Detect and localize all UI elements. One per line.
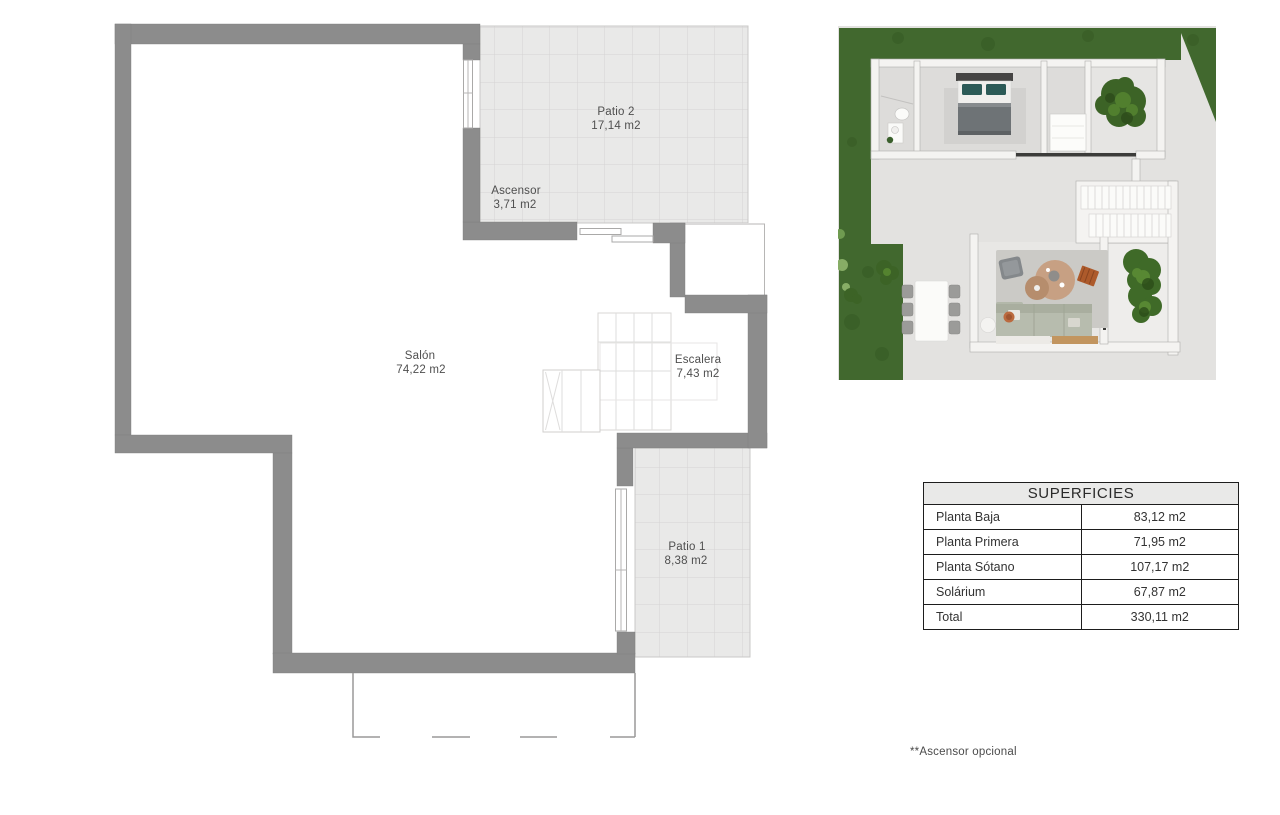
escalera-area-label: 7,43 m2 (677, 368, 720, 380)
row-value: 330,11 m2 (1081, 605, 1239, 630)
table-title: SUPERFICIES (924, 483, 1239, 505)
render-wardrobe (1050, 114, 1086, 151)
table-row: Total 330,11 m2 (924, 605, 1239, 630)
terrace-outline (353, 673, 635, 737)
void-opening (685, 223, 765, 295)
row-value: 83,12 m2 (1081, 505, 1239, 530)
table-row: Planta Baja 83,12 m2 (924, 505, 1239, 530)
salon-name: Salón (405, 350, 435, 362)
floorplan-drawing: Patio 2 17,14 m2 Ascensor 3,71 m2 Salón … (0, 0, 800, 815)
render-dining-set (902, 281, 960, 341)
row-label: Planta Baja (924, 505, 1082, 530)
patio2-name: Patio 2 (597, 106, 634, 118)
floorplan-sheet: { "floorplan": { "labels": { "patio2": {… (0, 0, 1280, 815)
render-living-room (981, 250, 1109, 344)
table-row: Solárium 67,87 m2 (924, 580, 1239, 605)
table-row: Planta Sótano 107,17 m2 (924, 555, 1239, 580)
patio1-name: Patio 1 (668, 541, 705, 553)
ascensor-name: Ascensor (491, 185, 541, 197)
row-label: Planta Sótano (924, 555, 1082, 580)
row-value: 71,95 m2 (1081, 530, 1239, 555)
patio1-area-label: 8,38 m2 (665, 555, 708, 567)
row-value: 67,87 m2 (1081, 580, 1239, 605)
row-label: Planta Primera (924, 530, 1082, 555)
salon-area-label: 74,22 m2 (396, 364, 446, 376)
patio2-area-label: 17,14 m2 (591, 120, 641, 132)
row-label: Total (924, 605, 1082, 630)
table-row: Planta Primera 71,95 m2 (924, 530, 1239, 555)
render-image (838, 22, 1216, 380)
ascensor-footnote: **Ascensor opcional (910, 746, 1017, 758)
superficies-table: SUPERFICIES Planta Baja 83,12 m2 Planta … (923, 482, 1239, 630)
row-label: Solárium (924, 580, 1082, 605)
ascensor-area-label: 3,71 m2 (494, 199, 537, 211)
row-value: 107,17 m2 (1081, 555, 1239, 580)
escalera-name: Escalera (675, 354, 722, 366)
